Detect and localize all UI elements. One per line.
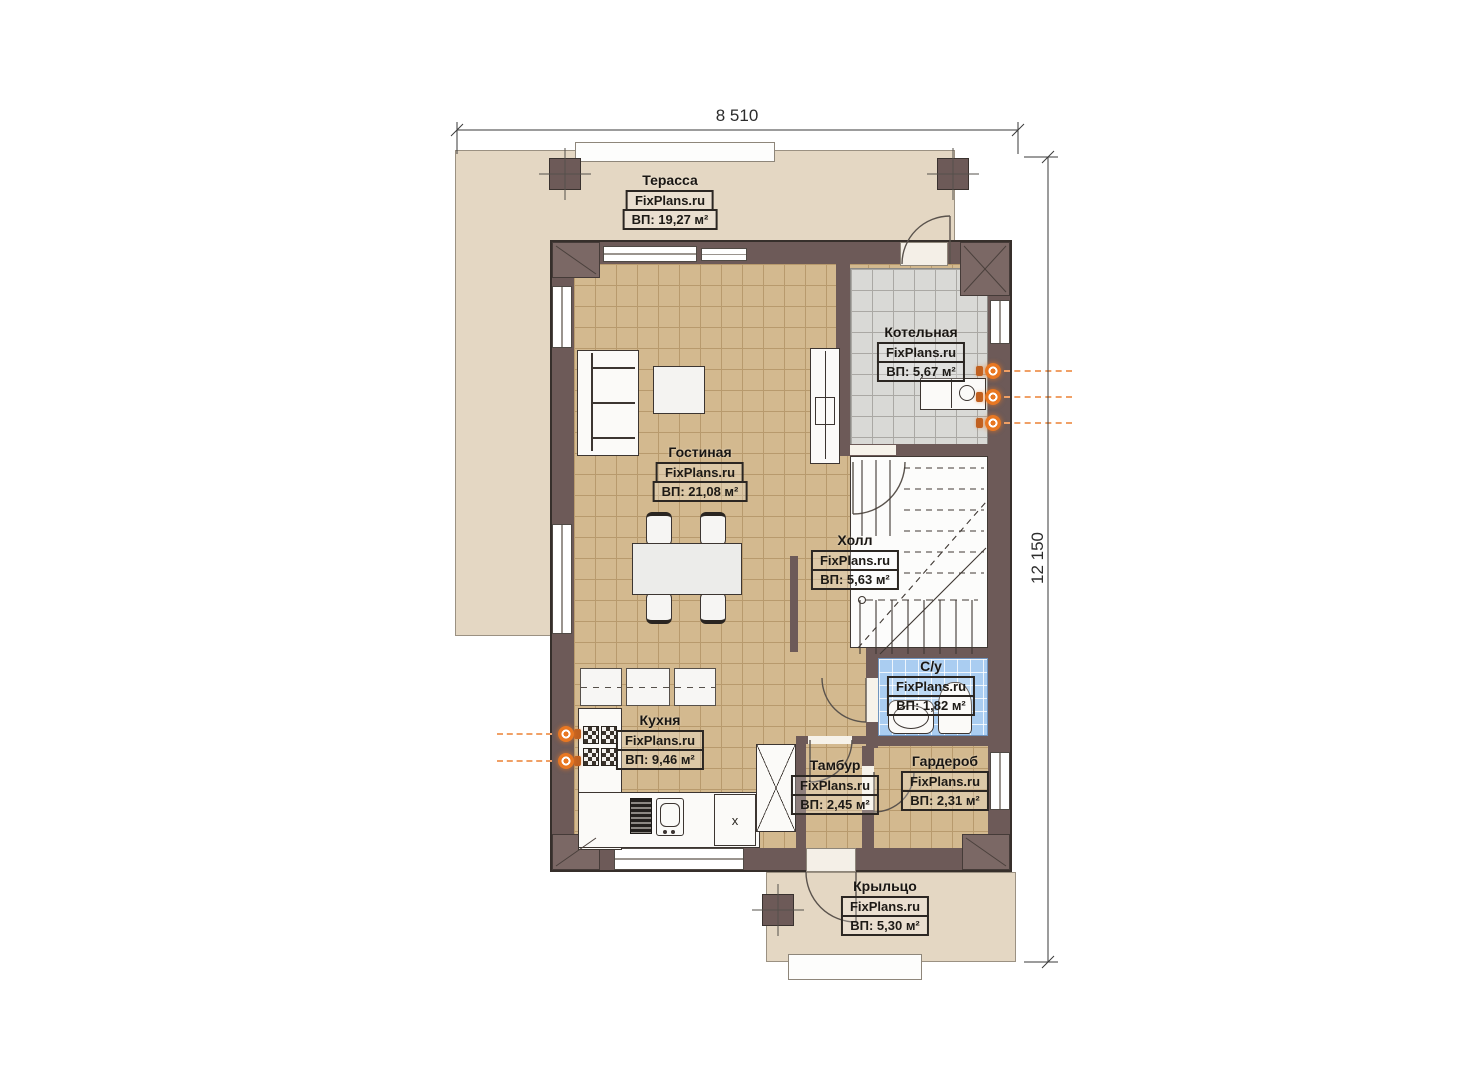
corner-block-bottom-right: [962, 834, 1010, 870]
terrace-step: [575, 142, 775, 162]
room-label-vestibule: Тамбур FixPlans.ru ВП: 2,45 м²: [791, 757, 879, 815]
dining-chair: [700, 512, 726, 546]
floor-plan-canvas: x: [0, 0, 1473, 1080]
room-area: ВП: 5,63 м²: [811, 569, 899, 590]
door-opening-boiler-exterior: [900, 242, 948, 266]
dish-rack: [630, 798, 652, 834]
room-name: Холл: [837, 532, 872, 548]
utility-stem: [976, 418, 983, 428]
room-brand: FixPlans.ru: [656, 462, 744, 483]
room-name: Котельная: [884, 324, 957, 340]
window-top-living-1: [603, 246, 697, 262]
utility-line: [1004, 422, 1072, 424]
kitchen-upper-cabinet: [674, 668, 716, 706]
room-area: ВП: 9,46 м²: [616, 749, 704, 770]
wall-stub-living: [790, 556, 798, 652]
utility-stem: [976, 366, 983, 376]
door-opening-bathroom: [866, 678, 878, 722]
room-brand: FixPlans.ru: [626, 190, 714, 211]
appliance-x-label: x: [732, 813, 739, 828]
porch-step: [788, 954, 922, 980]
window-right-boiler: [990, 300, 1010, 344]
door-opening-entry: [806, 848, 856, 872]
window-left-living-2: [552, 524, 572, 634]
coffee-table: [653, 366, 705, 414]
room-name: Гостиная: [668, 444, 731, 460]
room-name: Кухня: [640, 712, 681, 728]
room-brand: FixPlans.ru: [616, 730, 704, 751]
room-area: ВП: 21,08 м²: [653, 481, 748, 502]
room-label-boiler: Котельная FixPlans.ru ВП: 5,67 м²: [877, 324, 965, 382]
column-terrace-right: [937, 158, 969, 190]
kitchen-upper-cabinet: [626, 668, 670, 706]
room-label-wardrobe: Гардероб FixPlans.ru ВП: 2,31 м²: [901, 753, 989, 811]
window-left-living-1: [552, 286, 572, 348]
door-opening-vestibule: [808, 736, 852, 744]
dimension-height-label: 12 150: [1028, 532, 1048, 584]
room-label-terrace: Терасса FixPlans.ru ВП: 19,27 м²: [623, 172, 718, 230]
utility-line: [497, 733, 552, 735]
room-area: ВП: 5,67 м²: [877, 361, 965, 382]
room-brand: FixPlans.ru: [811, 550, 899, 571]
utility-connection-marker: [985, 389, 1001, 405]
door-opening-stair: [850, 445, 896, 455]
utility-line: [497, 760, 552, 762]
utility-stem: [574, 729, 581, 739]
wall-bathroom-wardrobe: [874, 736, 988, 746]
room-name: Крыльцо: [853, 878, 917, 894]
window-right-wardrobe: [990, 752, 1010, 810]
room-label-living: Гостиная FixPlans.ru ВП: 21,08 м²: [653, 444, 748, 502]
room-name: Гардероб: [912, 753, 978, 769]
stove-burner: [583, 726, 599, 744]
utility-stem: [574, 756, 581, 766]
stove-burner: [583, 748, 599, 766]
room-name: С/у: [920, 658, 942, 674]
room-brand: FixPlans.ru: [901, 771, 989, 792]
room-brand: FixPlans.ru: [841, 896, 929, 917]
room-label-porch: Крыльцо FixPlans.ru ВП: 5,30 м²: [841, 878, 929, 936]
tv-cabinet: [810, 348, 840, 464]
room-area: ВП: 5,30 м²: [841, 915, 929, 936]
corner-block-top-left: [552, 242, 600, 278]
stove-burner: [601, 748, 617, 766]
stove-burner: [601, 726, 617, 744]
window-top-living-2: [701, 248, 747, 261]
column-terrace-left: [549, 158, 581, 190]
room-area: ВП: 1,82 м²: [887, 695, 975, 716]
utility-connection-marker: [558, 753, 574, 769]
corner-block-top-right: [960, 242, 1010, 296]
column-porch: [762, 894, 794, 926]
room-brand: FixPlans.ru: [791, 775, 879, 796]
utility-connection-marker: [985, 415, 1001, 431]
sofa: [577, 350, 639, 456]
room-brand: FixPlans.ru: [877, 342, 965, 363]
room-area: ВП: 2,45 м²: [791, 794, 879, 815]
dining-chair: [646, 592, 672, 624]
utility-connection-marker: [558, 726, 574, 742]
dimension-width-label: 8 510: [716, 106, 759, 126]
utility-line: [1004, 396, 1072, 398]
dining-chair: [700, 592, 726, 624]
room-label-kitchen: Кухня FixPlans.ru ВП: 9,46 м²: [616, 712, 704, 770]
room-label-hall: Холл FixPlans.ru ВП: 5,63 м²: [811, 532, 899, 590]
room-area: ВП: 19,27 м²: [623, 209, 718, 230]
wall-stair-bathroom: [866, 648, 988, 658]
room-brand: FixPlans.ru: [887, 676, 975, 697]
utility-connection-marker: [985, 363, 1001, 379]
window-bottom-kitchen: [614, 848, 744, 870]
kitchen-sink: [656, 798, 684, 836]
kitchen-appliance-x: x: [714, 794, 756, 846]
room-name: Тамбур: [810, 757, 861, 773]
room-area: ВП: 2,31 м²: [901, 790, 989, 811]
room-label-bathroom: С/у FixPlans.ru ВП: 1,82 м²: [887, 658, 975, 716]
dining-table: [632, 543, 742, 595]
terrace-area-left: [455, 255, 560, 636]
room-name: Терасса: [642, 172, 698, 188]
utility-stem: [976, 392, 983, 402]
utility-line: [1004, 370, 1072, 372]
dining-chair: [646, 512, 672, 546]
kitchen-upper-cabinet: [580, 668, 622, 706]
